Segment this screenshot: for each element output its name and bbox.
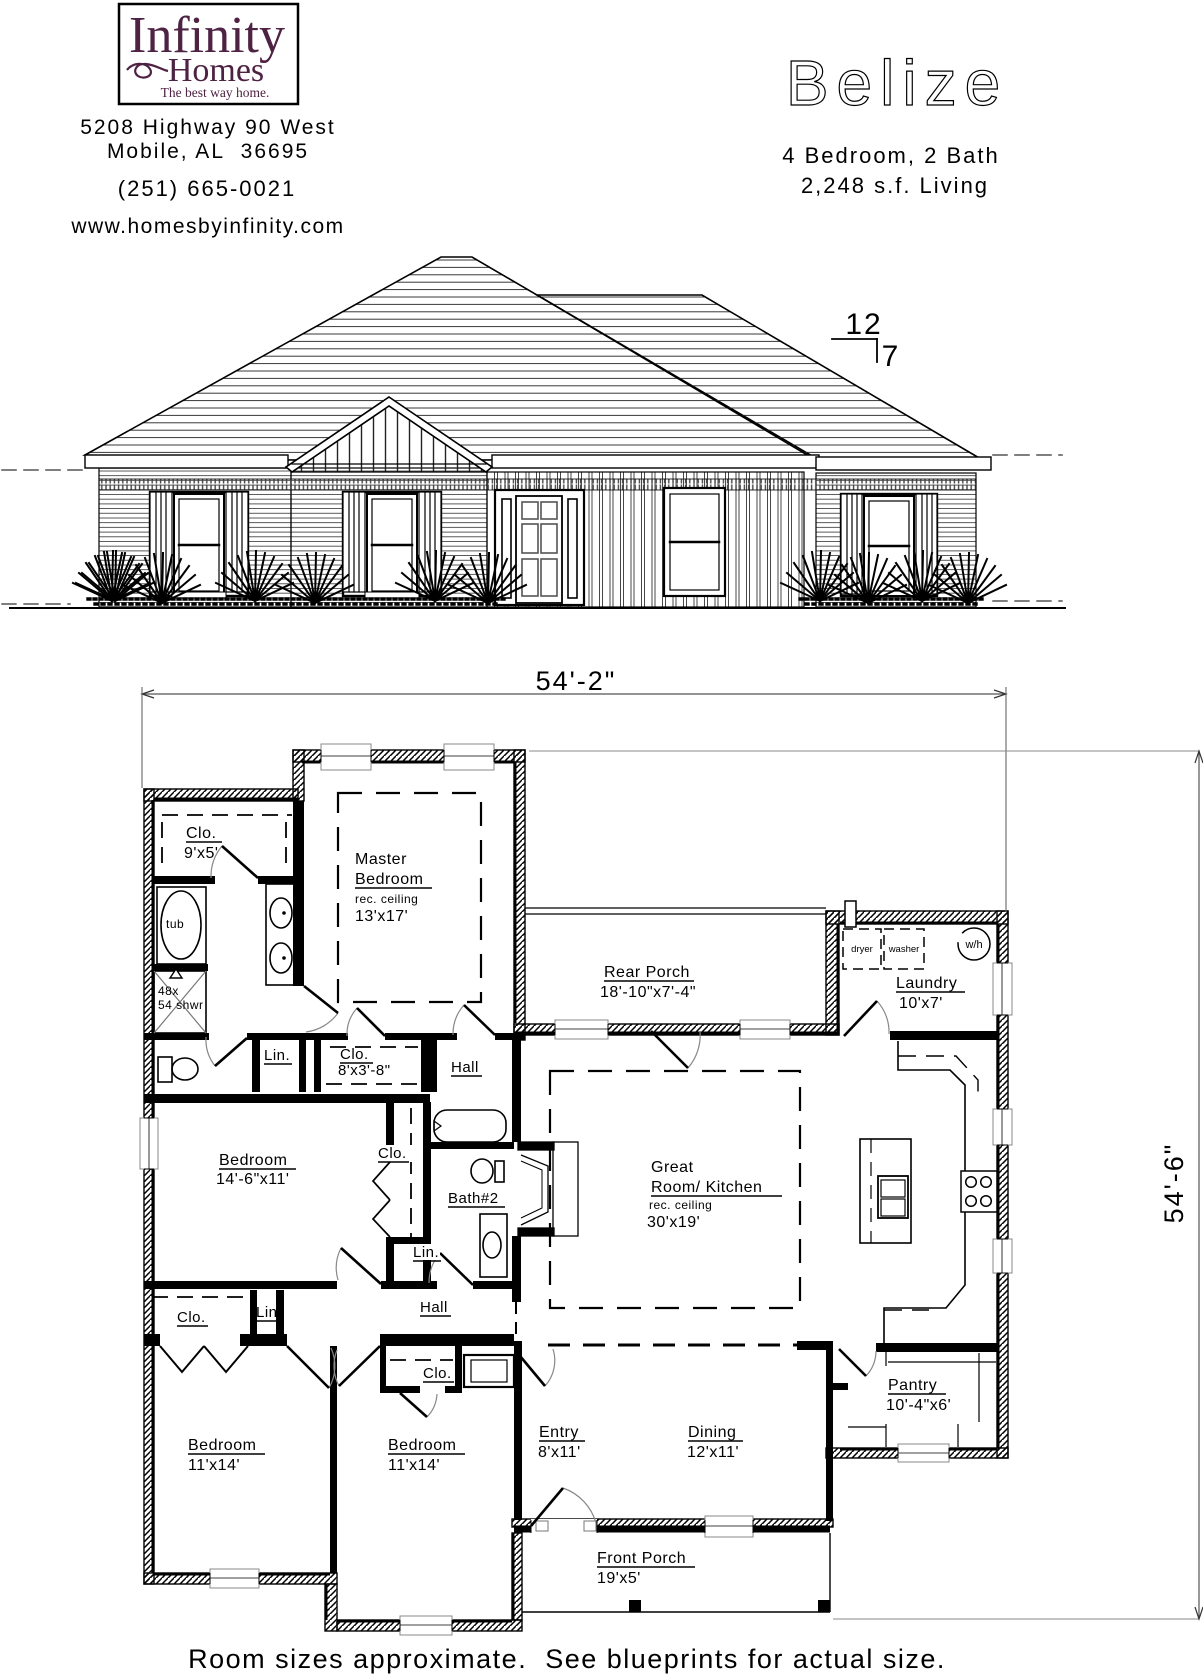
svg-text:Bedroom: Bedroom <box>388 1437 456 1454</box>
svg-text:rec. ceiling: rec. ceiling <box>649 1198 712 1212</box>
svg-text:(251) 665-0021: (251) 665-0021 <box>118 176 296 201</box>
svg-text:14'-6"x11': 14'-6"x11' <box>216 1171 289 1188</box>
svg-text:10'-4"x6': 10'-4"x6' <box>886 1397 951 1414</box>
svg-text:11'x14': 11'x14' <box>188 1457 240 1474</box>
svg-text:Lin.: Lin. <box>413 1244 439 1261</box>
svg-text:The best way home.: The best way home. <box>161 85 270 100</box>
svg-text:54'-2": 54'-2" <box>536 666 617 696</box>
svg-text:dryer: dryer <box>851 944 873 955</box>
svg-text:10'x7': 10'x7' <box>899 995 943 1012</box>
svg-text:Rear Porch: Rear Porch <box>604 964 690 981</box>
svg-text:Mobile, AL 36695: Mobile, AL 36695 <box>107 140 309 163</box>
svg-text:Bath#2: Bath#2 <box>448 1190 499 1207</box>
svg-text:Clo.: Clo. <box>378 1145 407 1162</box>
svg-text:Clo.: Clo. <box>340 1046 369 1063</box>
svg-text:Clo.: Clo. <box>177 1309 206 1326</box>
svg-text:Homes: Homes <box>168 52 264 89</box>
svg-text:Pantry: Pantry <box>888 1377 937 1394</box>
svg-text:8'x3'-8": 8'x3'-8" <box>338 1062 391 1079</box>
svg-text:www.homesbyinfinity.com: www.homesbyinfinity.com <box>70 215 344 238</box>
svg-text:Room sizes approximate. See b: Room sizes approximate. See blueprints f… <box>188 1644 946 1674</box>
svg-text:Bedroom: Bedroom <box>188 1437 256 1454</box>
svg-text:washer: washer <box>888 944 920 955</box>
svg-text:54'-6": 54'-6" <box>1159 1143 1189 1224</box>
svg-text:Hall: Hall <box>451 1059 479 1076</box>
svg-text:30'x19': 30'x19' <box>647 1214 700 1231</box>
svg-text:Belize: Belize <box>786 47 1008 119</box>
svg-text:48x: 48x <box>158 984 179 998</box>
svg-text:11'x14': 11'x14' <box>388 1457 440 1474</box>
svg-text:Master: Master <box>355 851 407 868</box>
svg-text:Bedroom: Bedroom <box>355 871 423 888</box>
svg-text:Clo.: Clo. <box>423 1365 452 1382</box>
svg-text:Front Porch: Front Porch <box>597 1550 686 1567</box>
svg-text:5208 Highway 90 West: 5208 Highway 90 West <box>80 116 336 139</box>
svg-text:Room/ Kitchen: Room/ Kitchen <box>651 1179 762 1196</box>
svg-text:54 shwr: 54 shwr <box>158 998 204 1012</box>
svg-text:18'-10"x7'-4": 18'-10"x7'-4" <box>600 984 696 1001</box>
svg-text:Entry: Entry <box>539 1424 579 1441</box>
svg-text:Great: Great <box>651 1159 694 1176</box>
svg-text:8'x11': 8'x11' <box>538 1444 581 1461</box>
svg-text:12: 12 <box>845 308 882 341</box>
svg-text:19'x5': 19'x5' <box>597 1570 641 1587</box>
svg-text:Lin.: Lin. <box>264 1047 290 1064</box>
svg-text:Dining: Dining <box>688 1424 736 1441</box>
svg-text:Bedroom: Bedroom <box>219 1152 287 1169</box>
svg-text:Laundry: Laundry <box>896 975 957 992</box>
svg-text:9'x5': 9'x5' <box>184 845 218 862</box>
svg-text:Lin.: Lin. <box>256 1304 282 1321</box>
svg-text:13'x17': 13'x17' <box>355 908 408 925</box>
svg-text:4 Bedroom, 2 Bath: 4 Bedroom, 2 Bath <box>782 143 999 168</box>
svg-text:2,248 s.f. Living: 2,248 s.f. Living <box>801 173 989 198</box>
svg-text:Hall: Hall <box>420 1299 448 1316</box>
svg-text:12'x11': 12'x11' <box>687 1444 739 1461</box>
svg-text:w/h: w/h <box>964 939 982 951</box>
svg-text:7: 7 <box>882 340 899 373</box>
svg-text:rec. ceiling: rec. ceiling <box>355 892 418 906</box>
svg-text:Clo.: Clo. <box>186 825 216 842</box>
svg-text:tub: tub <box>166 917 184 931</box>
